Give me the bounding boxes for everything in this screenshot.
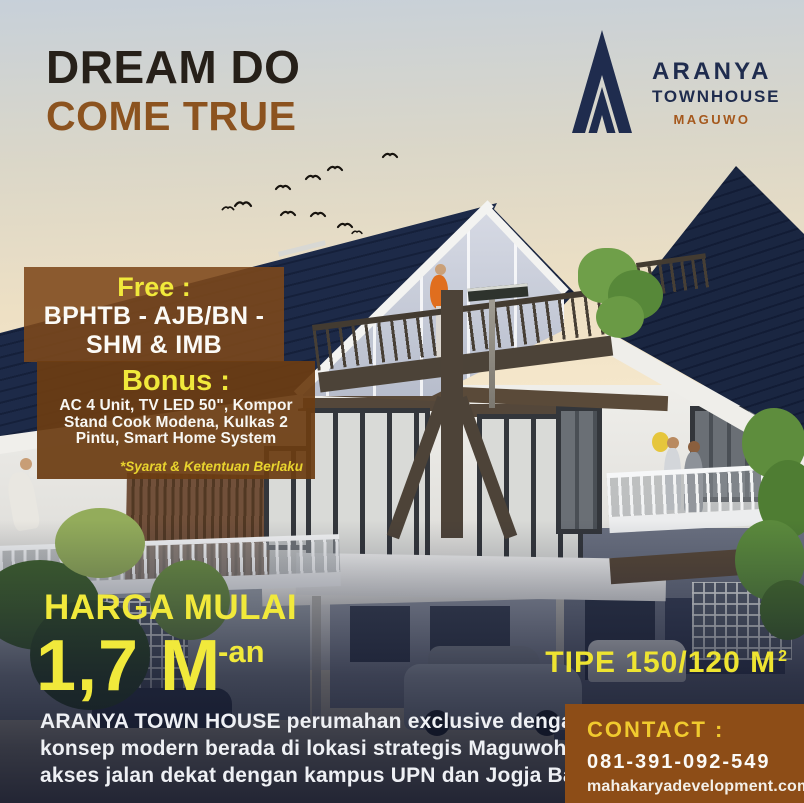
unit-type-text: TIPE 150/120 M xyxy=(545,646,776,679)
contact-box: CONTACT : 081-391-092-549 mahakaryadevel… xyxy=(565,704,804,803)
poster-canvas: DREAM DO COME TRUE ARANYA TOWNHOUSE MAGU… xyxy=(0,0,804,803)
bonus-promo-box: Bonus : AC 4 Unit, TV LED 50", Kompor St… xyxy=(37,361,315,479)
logo-type: TOWNHOUSE xyxy=(652,87,782,107)
terrace-lamp xyxy=(489,298,495,408)
facade-column xyxy=(441,290,463,538)
rooftop-person xyxy=(435,264,446,275)
aranya-logo-icon xyxy=(570,27,634,137)
window xyxy=(556,406,602,534)
waving-person xyxy=(20,458,32,470)
free-label: Free : xyxy=(24,272,284,302)
logo-location-badge: MAGUWO xyxy=(652,112,772,127)
tree xyxy=(596,296,644,338)
bonus-item-line: Pintu, Smart Home System xyxy=(37,431,315,448)
free-item-line: SHM & IMB xyxy=(24,331,284,360)
free-promo-box: Free : BPHTB - AJB/BN - SHM & IMB xyxy=(24,267,284,362)
bonus-item-line: AC 4 Unit, TV LED 50", Kompor xyxy=(37,398,315,415)
sub-headline: COME TRUE xyxy=(46,93,297,140)
contact-phone: 081-391-092-549 xyxy=(587,751,804,774)
contact-label: CONTACT : xyxy=(587,717,804,743)
unit-type-label: TIPE 150/120 M2 xyxy=(0,646,788,680)
bonus-label: Bonus : xyxy=(37,365,315,398)
free-item-line: BPHTB - AJB/BN - xyxy=(24,302,284,331)
bonus-item-line: Stand Cook Modena, Kulkas 2 xyxy=(37,415,315,432)
brand-logo: ARANYA TOWNHOUSE MAGUWO xyxy=(652,58,782,127)
description-line: akses jalan dekat dengan kampus UPN dan … xyxy=(40,762,585,789)
unit-type-superscript: 2 xyxy=(778,648,788,665)
description-paragraph: ARANYA TOWN HOUSE perumahan exclusive de… xyxy=(40,708,585,789)
main-headline: DREAM DO xyxy=(46,40,300,94)
terms-note: *Syarat & Ketentuan Berlaku xyxy=(120,459,303,474)
logo-brand-name: ARANYA xyxy=(652,58,782,86)
description-line: konsep modern berada di lokasi strategis… xyxy=(40,735,585,762)
contact-website: mahakaryadevelopment.com xyxy=(587,778,804,796)
description-line: ARANYA TOWN HOUSE perumahan exclusive de… xyxy=(40,708,585,735)
price-label: HARGA MULAI xyxy=(44,588,297,628)
